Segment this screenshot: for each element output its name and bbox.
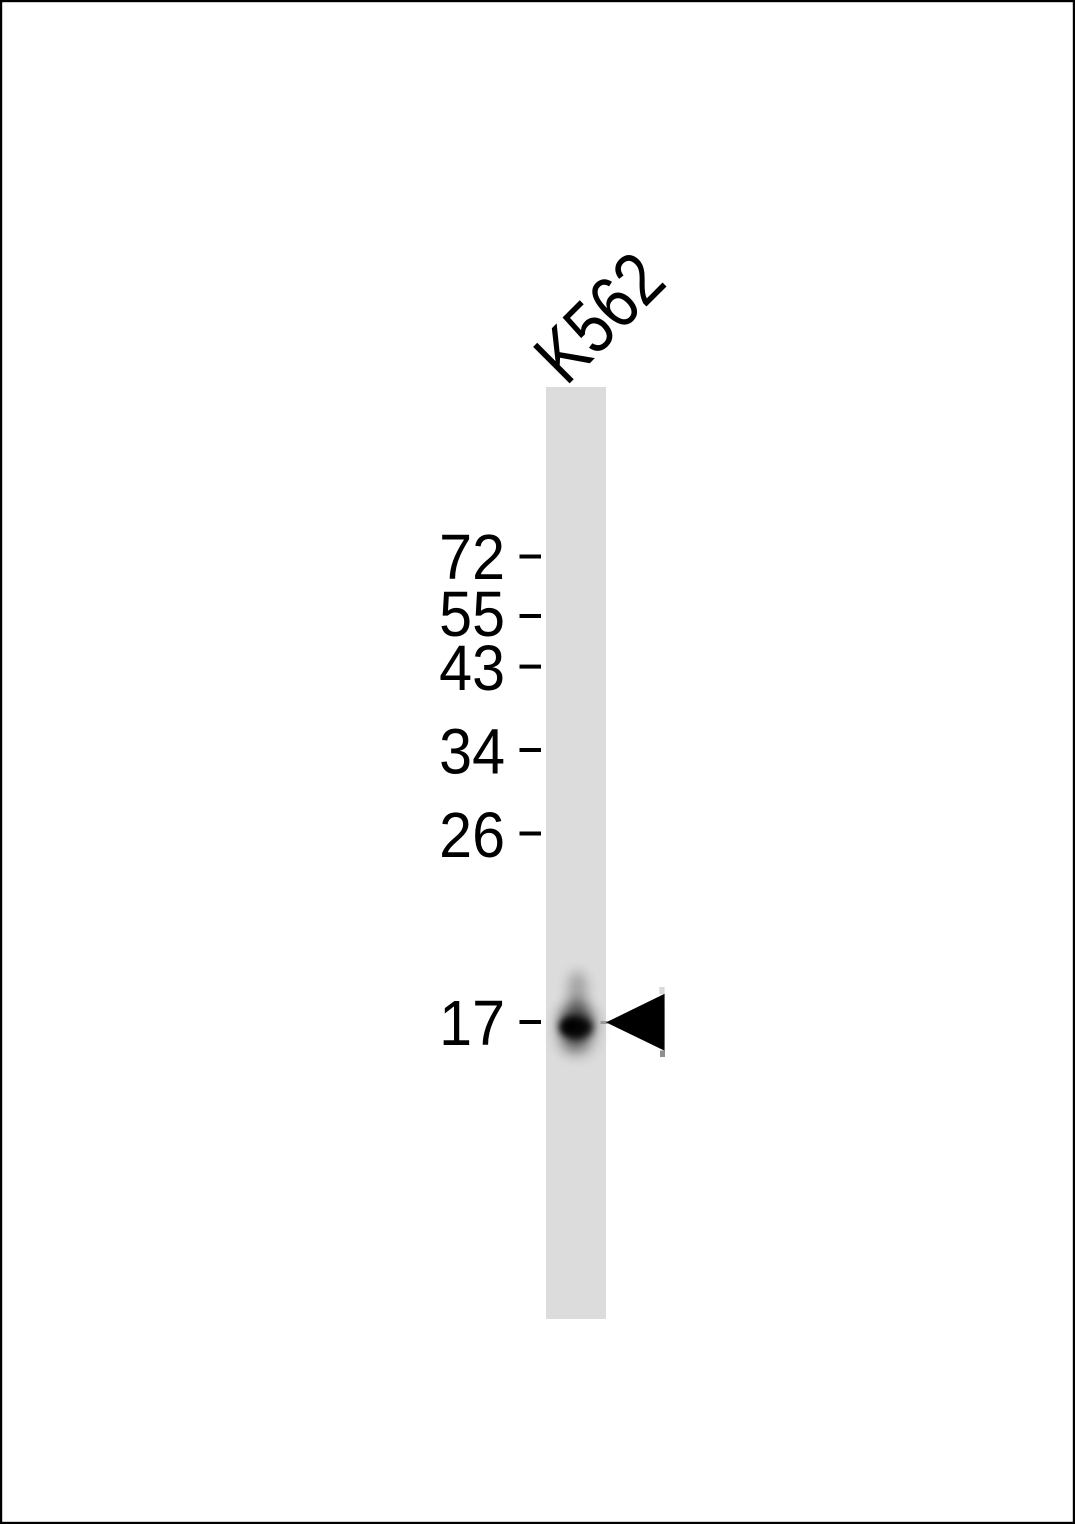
svg-text:26: 26 xyxy=(439,800,505,872)
svg-text:34: 34 xyxy=(439,716,505,788)
svg-text:43: 43 xyxy=(439,633,505,705)
svg-text:17: 17 xyxy=(439,988,505,1060)
